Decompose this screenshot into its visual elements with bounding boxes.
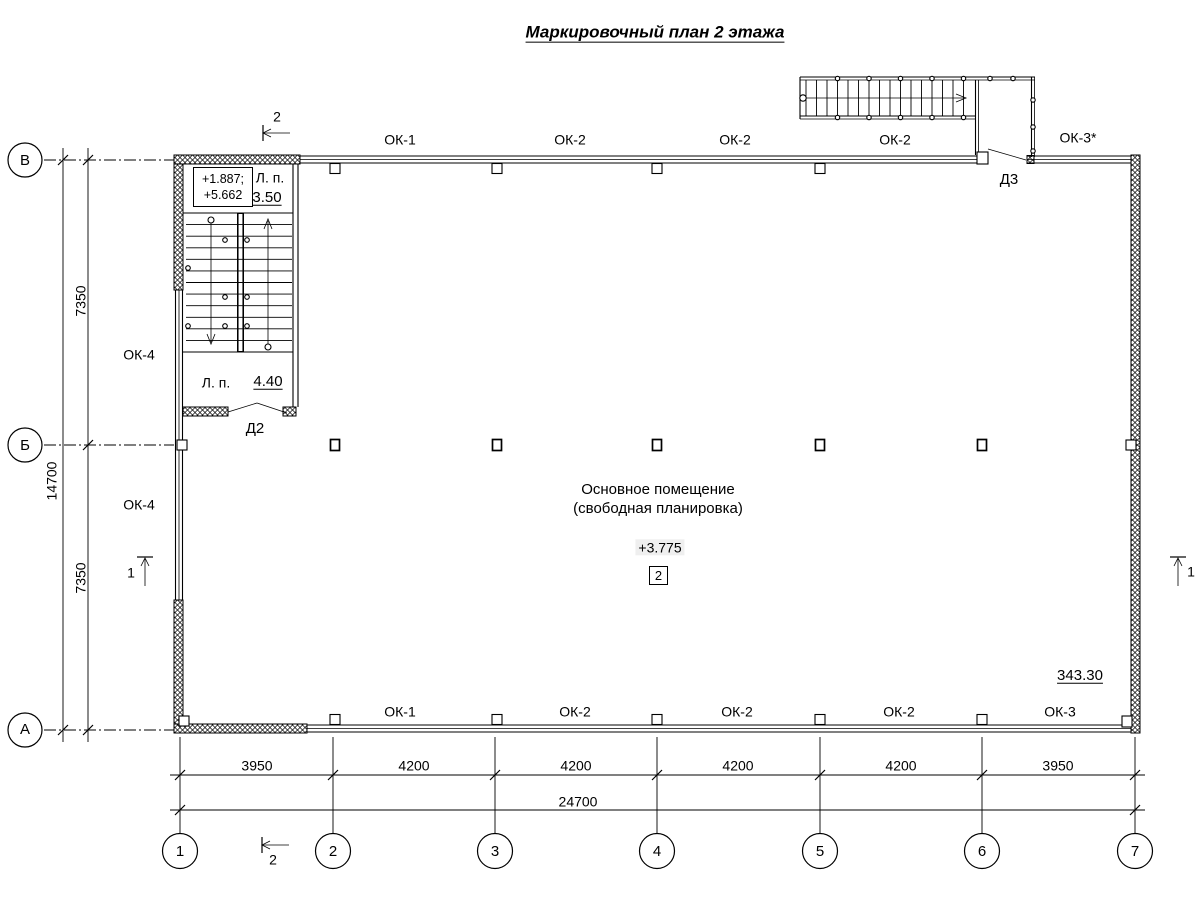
window-label-top-4: ОК-2	[879, 132, 911, 147]
dim-left-total: 14700	[44, 462, 59, 501]
section-marker-1-left: 1	[127, 565, 135, 580]
grid-number-1: 1	[176, 844, 184, 861]
room-name-line1: Основное помещение	[581, 482, 735, 499]
dim-left-2: 7350	[73, 562, 88, 593]
window-label-bottom-3: ОК-2	[721, 704, 753, 719]
grid-number-6: 6	[978, 844, 986, 861]
dim-bottom-6: 3950	[1042, 758, 1073, 773]
exterior-stair	[800, 76, 1035, 157]
room-area: 343.30	[1057, 668, 1103, 685]
dim-left-1: 7350	[73, 285, 88, 316]
axis-lines	[44, 160, 174, 730]
axis-letter-a: А	[20, 722, 30, 739]
stair-elevation-box: +1.887; +5.662	[193, 167, 253, 207]
interior-stair	[186, 213, 292, 352]
window-label-bottom-4: ОК-2	[883, 704, 915, 719]
axis-letter-v: В	[20, 153, 30, 170]
upper-landing-area: 3.50	[252, 190, 281, 207]
window-label-top-1: ОК-1	[384, 132, 416, 147]
room-name-line2: (свободная планировка)	[573, 501, 743, 518]
upper-landing-label: Л. п.	[256, 170, 284, 185]
grid-number-7: 7	[1131, 844, 1139, 861]
dim-bottom-5: 4200	[885, 758, 916, 773]
door-d3-swing	[977, 149, 1026, 164]
section-marker-2-bottom: 2	[269, 852, 277, 867]
door-label-d3: Д3	[1000, 172, 1019, 189]
grid-number-4: 4	[653, 844, 661, 861]
stair-elevation-line2: +5.662	[204, 187, 243, 203]
window-label-bottom-5: ОК-3	[1044, 704, 1076, 719]
window-label-top-2: ОК-2	[554, 132, 586, 147]
window-label-left-2: ОК-4	[123, 497, 155, 512]
grid-number-3: 3	[491, 844, 499, 861]
dim-bottom-2: 4200	[398, 758, 429, 773]
window-label-bottom-2: ОК-2	[559, 704, 591, 719]
axis-letter-b: Б	[20, 438, 30, 455]
floor-plan-sheet: Маркировочный план 2 этажа ОК-1 ОК-2 ОК-…	[0, 0, 1200, 900]
door-label-d2: Д2	[246, 421, 265, 438]
window-label-top-3: ОК-2	[719, 132, 751, 147]
dim-bottom-3: 4200	[560, 758, 591, 773]
drawing-title: Маркировочный план 2 этажа	[526, 24, 785, 43]
window-label-bottom-1: ОК-1	[384, 704, 416, 719]
room-number-box: 2	[649, 566, 668, 585]
window-label-top-5: ОК-3*	[1060, 130, 1097, 145]
lower-landing-label: Л. п.	[202, 375, 230, 390]
lower-landing-area: 4.40	[253, 374, 282, 391]
grid-number-5: 5	[816, 844, 824, 861]
plan-linework	[0, 0, 1200, 900]
dim-bottom-1: 3950	[241, 758, 272, 773]
bottom-dimension-lines	[170, 737, 1145, 833]
section-marker-2-top: 2	[273, 109, 281, 124]
window-label-left-1: ОК-4	[123, 347, 155, 362]
dim-bottom-4: 4200	[722, 758, 753, 773]
dim-bottom-total: 24700	[559, 794, 598, 809]
grid-number-2: 2	[329, 844, 337, 861]
stair-elevation-line1: +1.887;	[202, 171, 244, 187]
door-d2-swing	[228, 403, 287, 413]
interior-columns	[331, 440, 987, 451]
room-elevation: +3.775	[635, 540, 684, 555]
section-marker-1-right: 1	[1187, 564, 1195, 579]
